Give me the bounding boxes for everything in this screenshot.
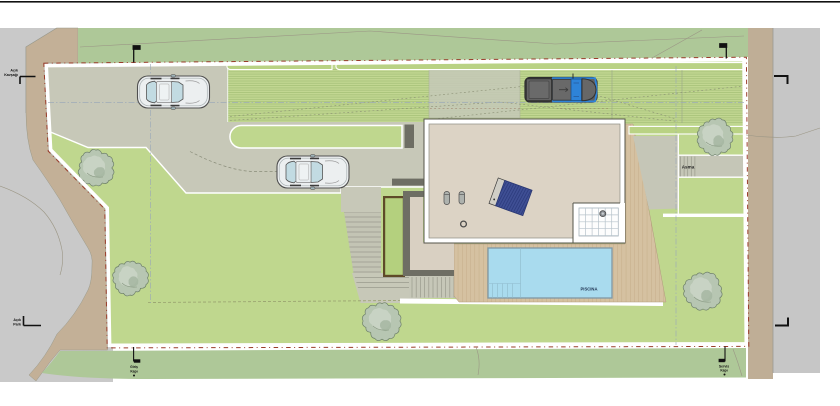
svg-text:Giriş: Giriş [130, 365, 138, 369]
svg-text:Kavşağı: Kavşağı [4, 73, 18, 77]
svg-text:Asma: Asma [682, 165, 695, 170]
svg-text:Kapı: Kapı [720, 369, 727, 373]
svg-text:Kapı: Kapı [130, 370, 137, 374]
svg-text:Açık: Açık [10, 69, 18, 73]
svg-text:PISCINA: PISCINA [581, 287, 598, 292]
svg-text:Park: Park [13, 323, 21, 327]
svg-text:Açık: Açık [13, 318, 21, 322]
